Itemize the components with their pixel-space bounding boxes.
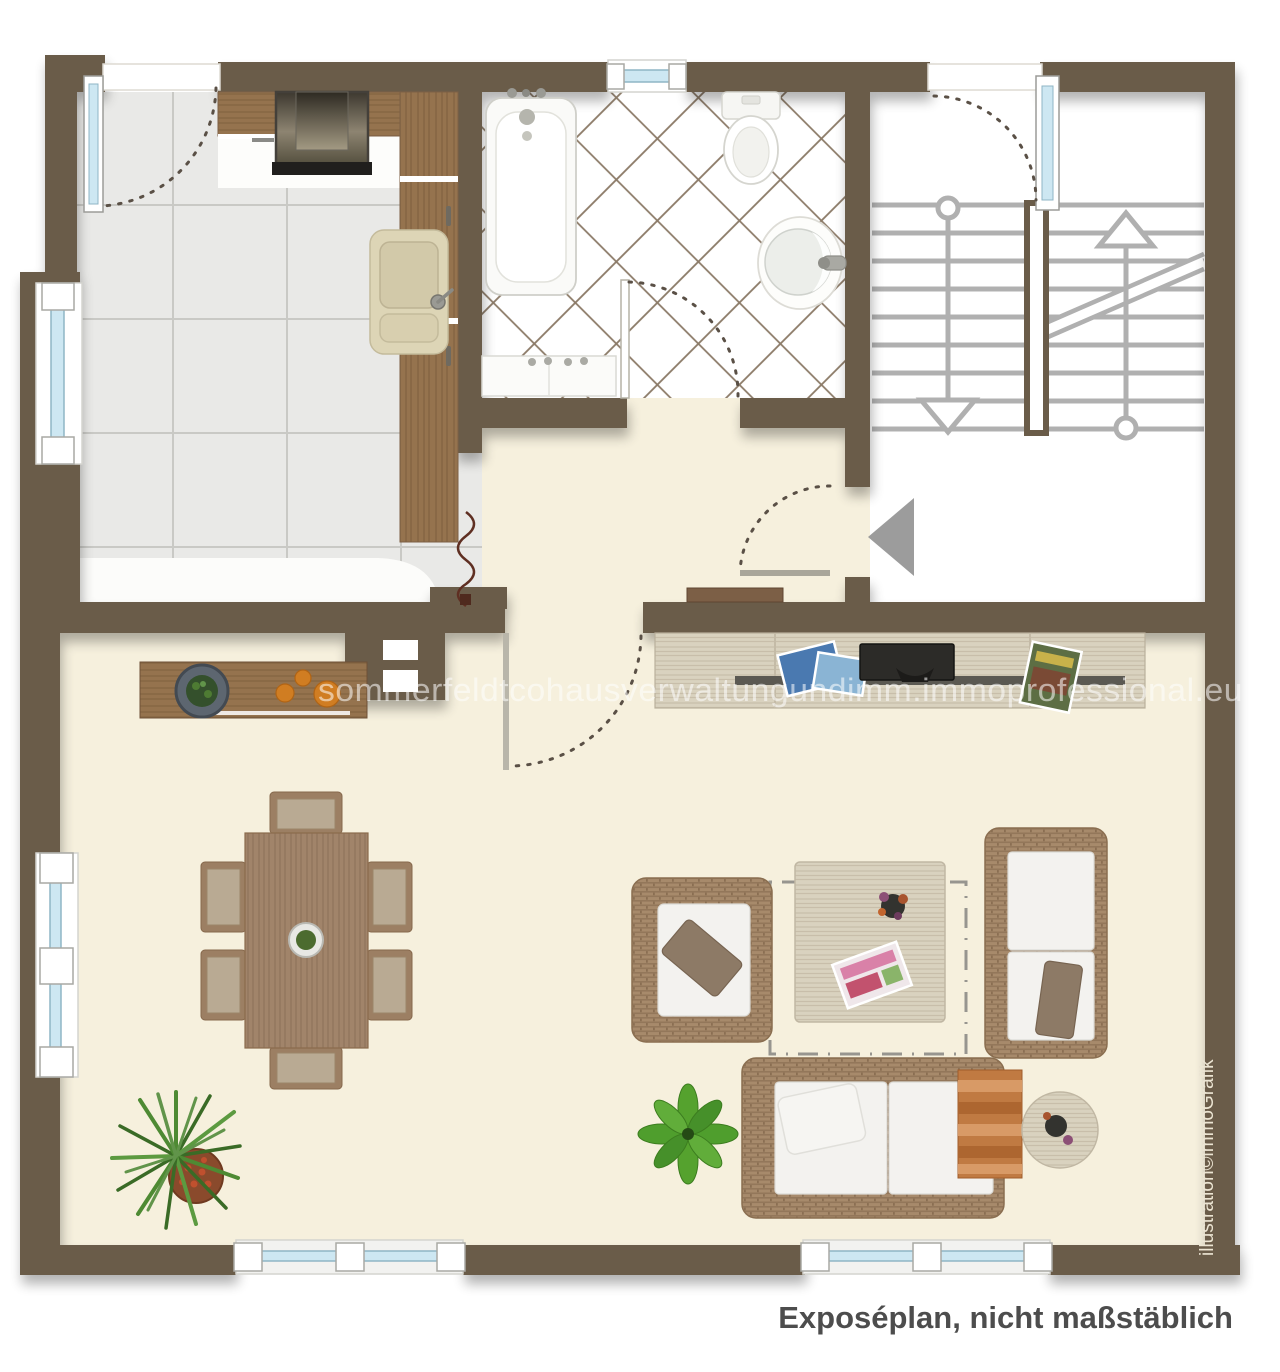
sofa (985, 828, 1107, 1058)
cabinet-handle (446, 206, 451, 226)
wall-living-top-right (643, 602, 1235, 633)
orange-fruit (295, 670, 311, 686)
hall-bench (687, 588, 783, 602)
watermark-text: sommerfeldtcohausverwaltungundimm.immopr… (318, 672, 1243, 708)
window-living-bottom-2 (801, 1240, 1052, 1274)
wall-bottom-1 (20, 1245, 236, 1275)
toilet-icon (722, 92, 780, 184)
bathroom-vanity (482, 356, 616, 396)
door-opening (928, 64, 1042, 90)
kitchen-sink-icon (370, 230, 452, 354)
entrance-door-threshold (845, 487, 870, 577)
cabinet-handle (446, 346, 451, 366)
bathtub-icon (486, 88, 576, 295)
side-table (1022, 1092, 1098, 1168)
floor-plan: sommerfeldtcohausverwaltungundimm.immopr… (0, 0, 1280, 1372)
window-bathroom (607, 60, 686, 92)
stairwell (872, 198, 1204, 438)
dining-chair (367, 862, 412, 932)
dining-chair (367, 950, 412, 1020)
wall-bottom-2 (463, 1245, 805, 1275)
blanket (958, 1070, 1022, 1178)
wall-bath-bottom-left (455, 398, 627, 428)
wall-top-stair-left (870, 62, 930, 92)
dining-chair (201, 950, 246, 1020)
orange-fruit (276, 684, 294, 702)
wall-hall-stair-upper (845, 62, 870, 487)
wall-top-kitchen (218, 62, 608, 92)
cooker-hood-icon (272, 92, 372, 175)
living-door-threshold (505, 602, 643, 633)
wall-top-stair-right (1040, 62, 1205, 92)
dining-chair (201, 862, 246, 932)
window-kitchen (36, 283, 82, 464)
caption-text: Exposéplan, nicht maßstäblich (778, 1300, 1233, 1335)
wall-left-upper (45, 62, 77, 272)
loveseat (742, 1058, 1022, 1218)
cooktop-front (272, 162, 372, 175)
door-leaf (621, 280, 629, 398)
coffee-table (795, 862, 945, 1022)
floor-plan-page: sommerfeldtcohausverwaltungundimm.immopr… (0, 0, 1280, 1372)
stair-center-wall (1027, 203, 1046, 433)
kitchen-floor-white-area (60, 558, 440, 607)
dining-table (245, 833, 368, 1048)
dining-chair (270, 1047, 342, 1089)
window-living-left (36, 853, 78, 1077)
cabinet-handle (252, 138, 274, 142)
dining-chair (270, 792, 342, 834)
door-leaf (740, 570, 830, 576)
bathroom-door-threshold (627, 398, 740, 428)
window-living-bottom-1 (234, 1240, 465, 1274)
wall-top-bath (686, 62, 870, 92)
chimney-niche-1 (383, 640, 418, 660)
armchair (632, 878, 772, 1042)
door-opening (103, 64, 220, 90)
credit-text: illustration©immoGrafik (1197, 1059, 1218, 1256)
